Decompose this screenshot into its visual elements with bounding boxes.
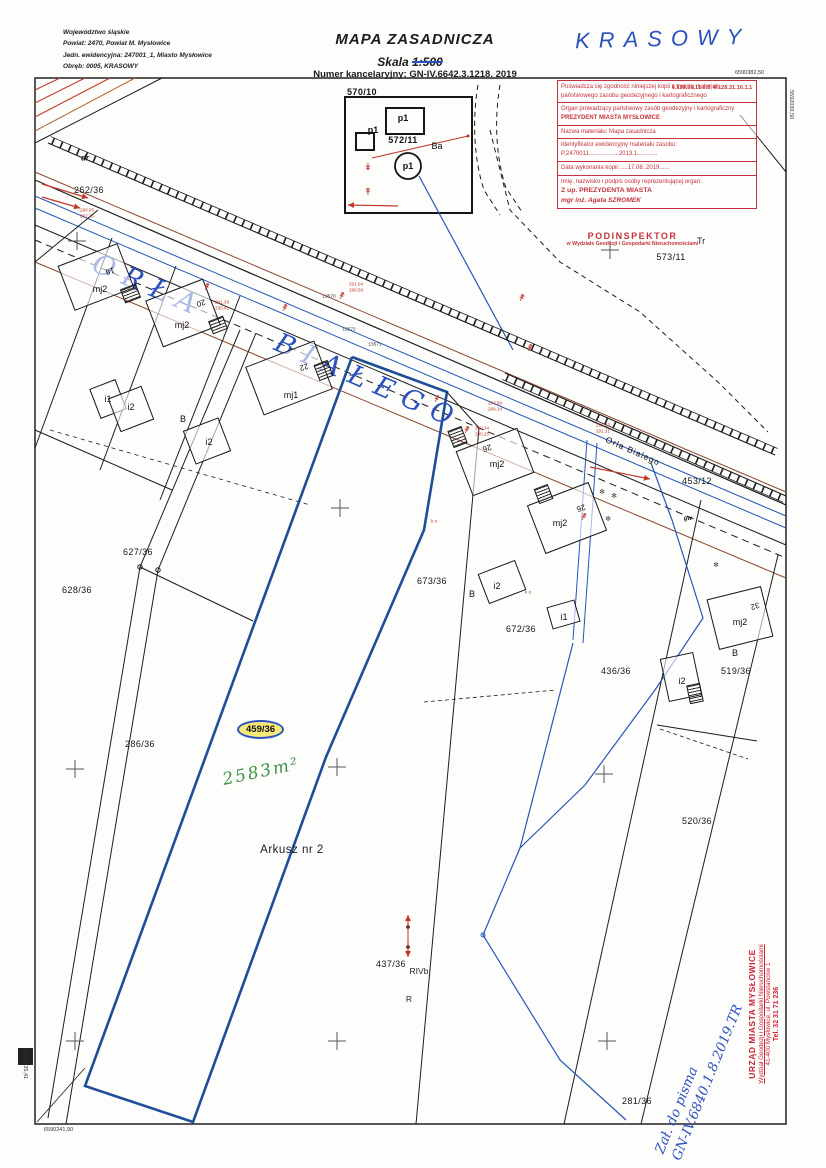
- city-office-stamp: URZĄD MIASTA MYSŁOWICE Wydział Geodezji …: [747, 910, 782, 1118]
- map-metadata-block: Województwo śląskie Powiat: 2470, Powiat…: [63, 27, 212, 73]
- registry-number: Numer kancelaryjny: GN-IV.6642.3.1218. 2…: [270, 69, 560, 80]
- stamp-row-identifier: Identyfikator ewidencyjny materiału zaso…: [558, 139, 756, 161]
- signature-name: mgr inż. Agata SZROMEK: [561, 197, 641, 204]
- map-title: MAPA ZASADNICZA: [300, 31, 530, 48]
- admin-unit: Jedn. ewidencyjna: 247001_1, Miasto Mysł…: [63, 50, 212, 61]
- region-handwritten-note: KRASOWY: [575, 24, 751, 55]
- county: Powiat: 2470, Powiat M. Mysłowice: [63, 38, 212, 49]
- precinct: Obręb: 0005, KRASOWY: [63, 61, 212, 72]
- stamp-row-date: Data wykonania kopii: ....17.08..2019...…: [558, 162, 756, 176]
- stamp-row-signature: Imię, nazwisko i podpis osoby reprezentu…: [558, 176, 756, 208]
- inspector-subtitle: w Wydziale Geodezji i Gospodarki Nieruch…: [545, 241, 720, 247]
- coord-right-vertical: 5592030,50: [788, 90, 794, 119]
- inspector-initials: Tr: [697, 236, 705, 246]
- inspector-block: PODINSPEKTOR w Wydziale Geodezji i Gospo…: [545, 231, 720, 247]
- stamp-row-organ: Organ prowadzący państwowy zasób geodezy…: [558, 103, 756, 125]
- stamp-row-material: Nazwa materiału: Mapa zasadnicza: [558, 126, 756, 140]
- scale-label: Skala: [377, 55, 408, 69]
- stamp-president: PREZYDENT MIASTA MYSŁOWICE: [561, 115, 660, 121]
- coord-bottom-left: 6590241,90: [44, 1127, 73, 1133]
- cadastral-map-page: Województwo śląskie Powiat: 2470, Powiat…: [0, 0, 826, 1168]
- scale-line: Skala 1:500: [300, 55, 520, 69]
- scale-value-struck: 1:500: [412, 55, 443, 69]
- voivodeship: Województwo śląskie: [63, 27, 212, 38]
- stamp-row-certify: Poświadcza się zgodność niniejszej kopii…: [558, 81, 756, 103]
- coord-left-vertical: 5591935,41: [22, 1050, 28, 1079]
- highlighted-parcel-459-36: 459/36: [237, 720, 284, 739]
- coord-top-right: 6590382,50: [735, 70, 764, 76]
- certification-stamp: Poświadcza się zgodność niniejszej kopii…: [557, 80, 757, 209]
- inspector-title: PODINSPEKTOR: [545, 231, 720, 241]
